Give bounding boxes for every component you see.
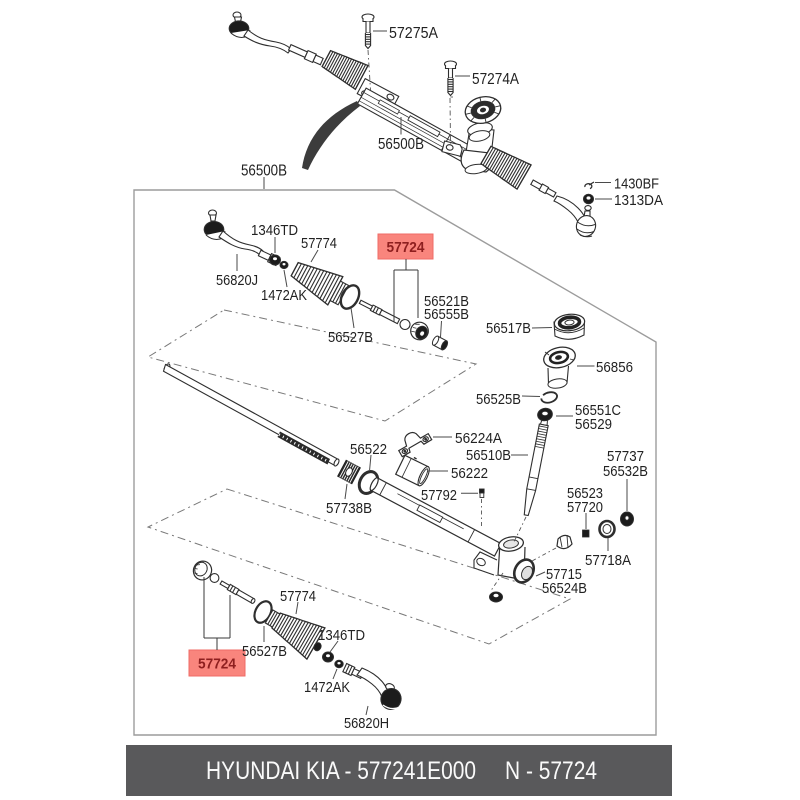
svg-text:56500B: 56500B [378,136,424,153]
svg-text:57738B: 57738B [326,501,372,517]
svg-text:57718A: 57718A [585,553,631,569]
svg-text:N - 57724: N - 57724 [505,757,597,785]
svg-text:57724: 57724 [198,656,237,673]
svg-text:56532B: 56532B [603,464,648,480]
svg-text:56510B: 56510B [466,448,511,464]
svg-text:56517B: 56517B [486,321,531,337]
svg-text:1346TD: 1346TD [251,223,298,239]
svg-text:57724: 57724 [387,239,426,256]
svg-text:1313DA: 1313DA [614,192,663,209]
svg-text:56522: 56522 [350,442,387,458]
svg-text:57774: 57774 [280,589,316,605]
svg-text:57792: 57792 [421,488,457,504]
svg-text:1430BF: 1430BF [614,176,659,193]
svg-text:56527B: 56527B [242,644,287,660]
svg-text:56224A: 56224A [455,431,502,447]
svg-text:1472AK: 1472AK [304,680,350,696]
svg-text:57274A: 57274A [472,71,519,88]
svg-text:57720: 57720 [567,500,603,516]
svg-text:56527B: 56527B [328,330,373,346]
svg-text:HYUNDAI KIA - 577241E000: HYUNDAI KIA - 577241E000 [206,757,476,785]
svg-text:56529: 56529 [575,417,612,433]
svg-text:56820H: 56820H [344,716,389,732]
svg-text:57275A: 57275A [389,25,438,42]
svg-text:1472AK: 1472AK [261,288,307,304]
svg-text:56820J: 56820J [216,273,258,289]
svg-text:56524B: 56524B [542,581,587,597]
svg-text:56555B: 56555B [424,307,469,323]
svg-text:1346TD: 1346TD [318,628,365,644]
svg-text:56222: 56222 [451,466,488,482]
svg-text:57737: 57737 [607,449,644,465]
svg-text:56500B: 56500B [241,163,287,180]
svg-text:57774: 57774 [301,236,337,252]
svg-text:56856: 56856 [596,360,633,376]
svg-text:56525B: 56525B [476,392,521,408]
